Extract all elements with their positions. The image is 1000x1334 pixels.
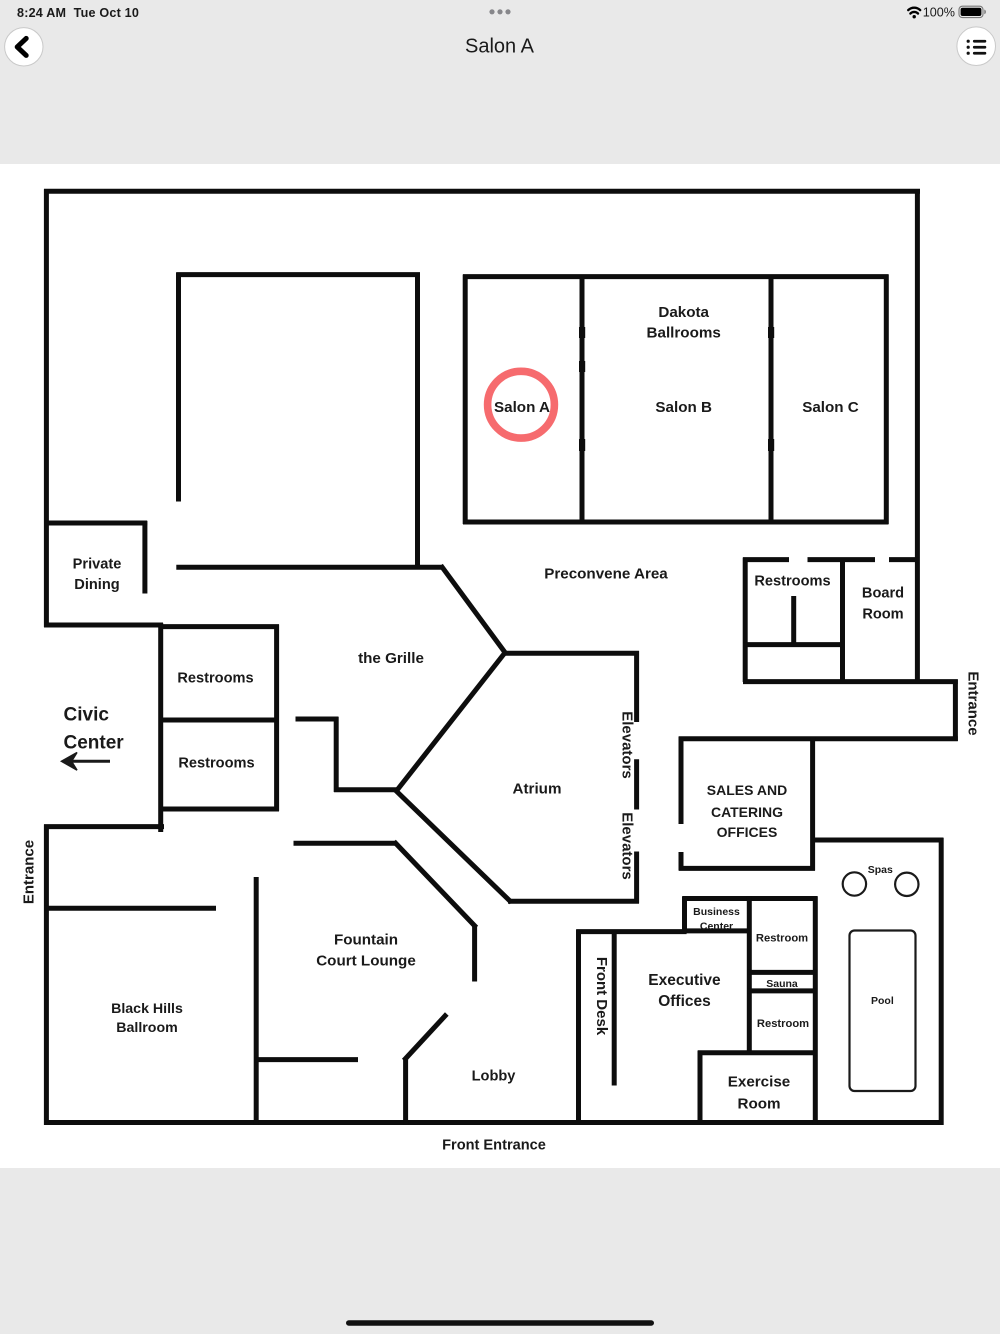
svg-text:Private: Private	[73, 557, 122, 573]
svg-text:Spas: Spas	[868, 864, 893, 876]
svg-text:Sauna: Sauna	[766, 978, 798, 990]
svg-text:Salon A: Salon A	[465, 35, 535, 57]
svg-text:Front Entrance: Front Entrance	[442, 1138, 546, 1154]
svg-text:Front Desk: Front Desk	[593, 957, 610, 1036]
svg-text:Dakota: Dakota	[658, 304, 709, 321]
svg-text:Salon C: Salon C	[802, 399, 859, 416]
svg-text:Center: Center	[700, 921, 733, 933]
svg-text:Fountain: Fountain	[334, 931, 398, 948]
svg-text:Preconvene Area: Preconvene Area	[544, 565, 668, 582]
svg-text:SALES AND: SALES AND	[707, 782, 787, 798]
svg-text:OFFICES: OFFICES	[717, 824, 778, 840]
svg-text:Elevators: Elevators	[619, 812, 636, 880]
svg-text:the Grille: the Grille	[358, 650, 424, 667]
svg-text:Restroom: Restroom	[757, 1018, 809, 1030]
svg-text:Executive: Executive	[648, 972, 721, 989]
svg-text:Offices: Offices	[658, 993, 711, 1010]
svg-text:Entrance: Entrance	[965, 671, 982, 735]
svg-text:Black Hills: Black Hills	[111, 1001, 183, 1017]
svg-text:Entrance: Entrance	[21, 840, 38, 904]
svg-text:100%: 100%	[923, 5, 955, 19]
svg-text:Room: Room	[737, 1095, 780, 1112]
svg-text:Pool: Pool	[871, 995, 894, 1007]
svg-text:Restrooms: Restrooms	[177, 671, 253, 687]
svg-text:Elevators: Elevators	[619, 711, 636, 779]
svg-text:Court Lounge: Court Lounge	[316, 952, 416, 969]
svg-text:Salon A: Salon A	[494, 399, 550, 416]
svg-text:Restroom: Restroom	[756, 933, 808, 945]
svg-text:Civic: Civic	[64, 704, 110, 725]
svg-text:Board: Board	[862, 586, 904, 602]
svg-text:Business: Business	[693, 906, 740, 918]
svg-text:Restrooms: Restrooms	[754, 574, 830, 590]
svg-text:Ballroom: Ballroom	[116, 1020, 178, 1036]
svg-text:Restrooms: Restrooms	[178, 756, 254, 772]
svg-text:Lobby: Lobby	[472, 1069, 517, 1085]
svg-text:Exercise: Exercise	[728, 1073, 791, 1090]
svg-text:Room: Room	[862, 607, 903, 623]
svg-text:Salon B: Salon B	[655, 399, 712, 416]
svg-text:CATERING: CATERING	[711, 804, 783, 820]
svg-text:Ballrooms: Ballrooms	[647, 324, 721, 341]
svg-text:Atrium: Atrium	[513, 780, 562, 797]
svg-text:Center: Center	[64, 732, 125, 753]
svg-text:Dining: Dining	[74, 577, 119, 593]
svg-text:8:24 AM Tue Oct 10: 8:24 AM Tue Oct 10	[17, 6, 139, 20]
